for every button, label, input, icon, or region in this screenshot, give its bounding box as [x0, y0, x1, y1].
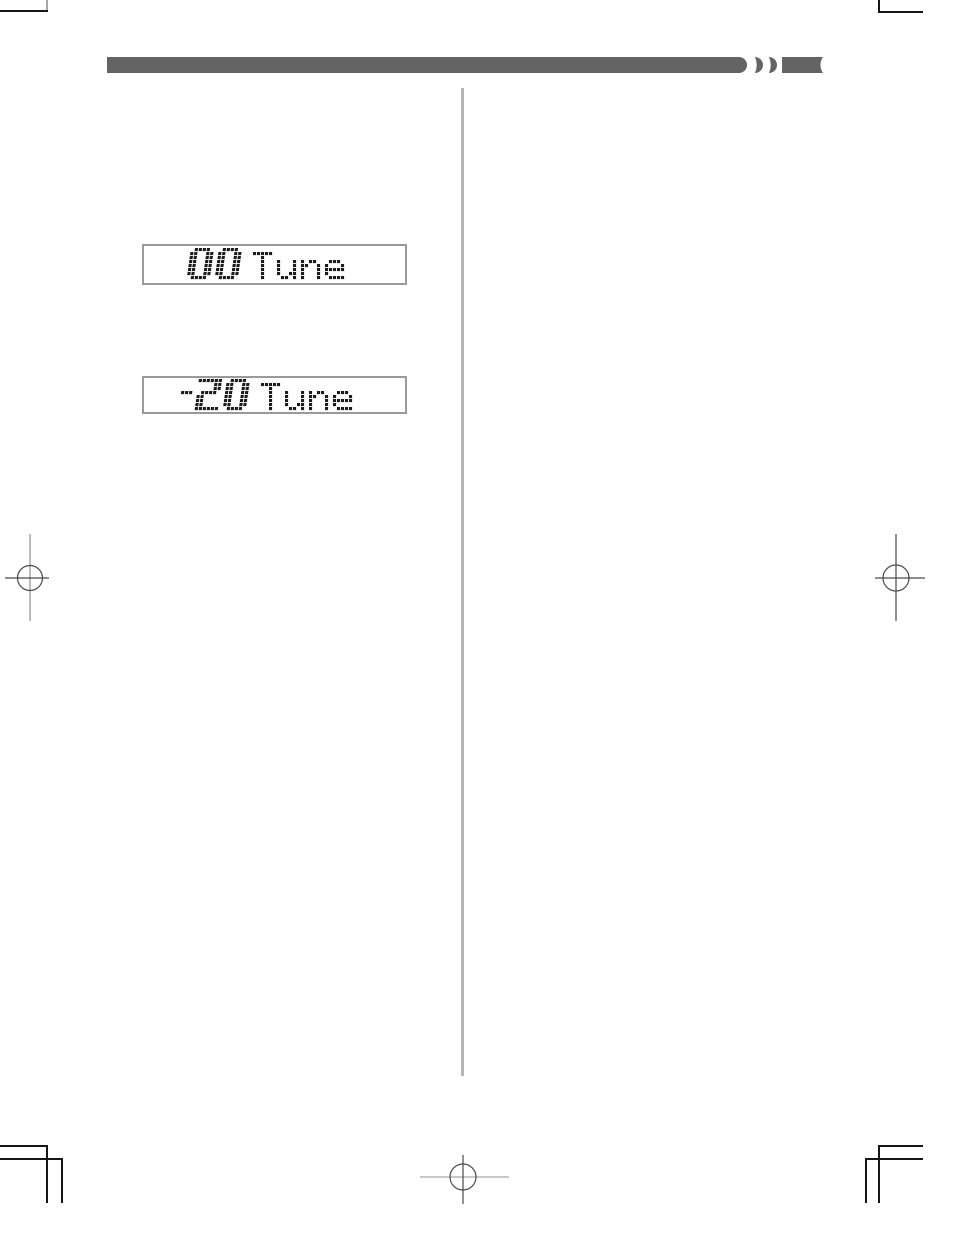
trim-mark-bottom-right-v1: [878, 1145, 880, 1203]
trim-mark-top-left-vertical: [46, 0, 48, 10]
trim-mark-bottom-right-h1: [878, 1145, 923, 1147]
header-bar-main: [107, 57, 747, 73]
trim-mark-top-left-horizontal: [0, 10, 48, 12]
lcd-display-tune-default: [142, 244, 407, 285]
trim-mark-bottom-left-h2: [0, 1158, 63, 1160]
lcd-display-tune-minus20: [142, 376, 407, 414]
trim-mark-bottom-left-h1: [0, 1145, 48, 1147]
trim-mark-bottom-left-v1: [46, 1145, 48, 1203]
section-header-bar: [107, 57, 823, 73]
header-bar-chevron-2: [769, 57, 777, 73]
lcd-text-minus20-tune: [177, 379, 357, 412]
manual-page: [0, 0, 954, 1235]
lcd-text-00-tune: [185, 248, 349, 281]
trim-mark-top-right-horizontal: [878, 11, 923, 13]
column-divider: [461, 88, 464, 1076]
header-bar-chevron-1: [755, 57, 763, 73]
registration-mark-bottom-center: [415, 1150, 515, 1210]
registration-mark-left: [0, 530, 60, 625]
header-bar-shape: [107, 57, 823, 73]
registration-mark-right-shape: [860, 530, 940, 625]
header-bar-end-block: [782, 57, 823, 73]
trim-mark-bottom-right-v2: [865, 1158, 867, 1203]
trim-mark-bottom-right-h2: [865, 1158, 923, 1160]
registration-mark-left-shape: [0, 530, 60, 625]
registration-mark-bottom-shape: [415, 1150, 515, 1210]
trim-mark-bottom-left-v2: [61, 1158, 63, 1203]
registration-mark-right: [860, 530, 940, 625]
